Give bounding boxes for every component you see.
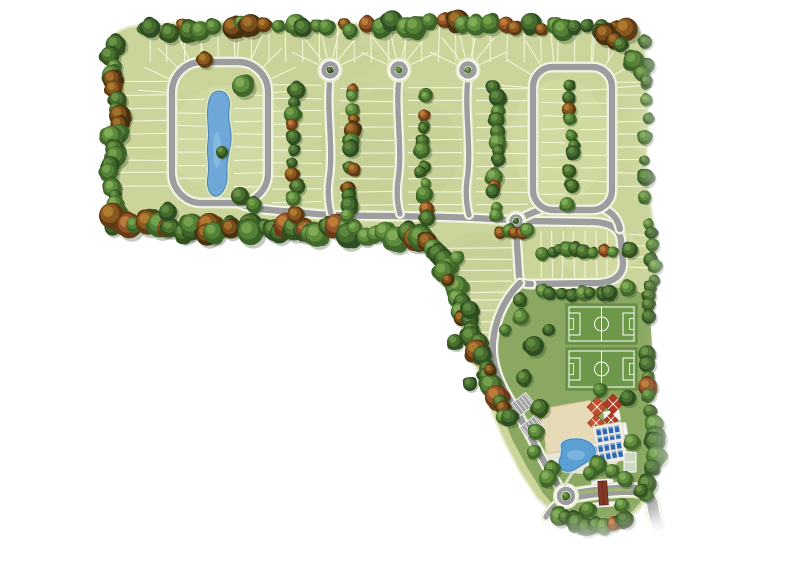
tree-canopy-light [582, 504, 589, 511]
tree-canopy-light [297, 21, 305, 29]
tree-canopy-light [618, 21, 628, 31]
tree-canopy-light [640, 132, 646, 138]
road [397, 78, 400, 214]
tree-canopy-light [648, 240, 654, 246]
tree-canopy-light [193, 24, 201, 32]
tree-canopy-light [328, 217, 338, 227]
tree-canopy-light [537, 25, 542, 30]
tree-canopy-light [104, 128, 113, 137]
tree-canopy-light [648, 434, 656, 442]
tree-canopy-light [108, 37, 117, 46]
tree-canopy-light [564, 93, 570, 99]
tree-canopy-light [645, 254, 651, 260]
tree-canopy-light [456, 295, 463, 302]
tree-canopy-light [645, 406, 651, 412]
tree-canopy-light [469, 18, 478, 27]
tree-canopy-light [609, 519, 615, 525]
tree-canopy-light [562, 243, 569, 250]
tree-canopy-light [486, 366, 491, 371]
site-plan-canvas [0, 0, 800, 566]
tree-canopy-light [226, 19, 235, 28]
tree-canopy-light [418, 188, 425, 195]
tree-canopy-light [162, 205, 170, 213]
tree-canopy-light [312, 21, 317, 26]
tree-canopy-light [530, 426, 537, 433]
tree-canopy-light [546, 463, 553, 470]
tree-canopy-light [288, 120, 293, 125]
lot-line [234, 173, 265, 174]
tree-canopy-light [288, 132, 294, 138]
tree-canopy-light [287, 169, 293, 175]
tree-canopy-light [644, 300, 650, 306]
tree-canopy-light [598, 26, 607, 35]
tree-canopy-light [636, 486, 642, 492]
tree-canopy-light [290, 146, 295, 151]
tree-canopy-light [585, 288, 590, 293]
tree-canopy-light [291, 84, 298, 91]
tree-canopy-light [208, 21, 215, 28]
tree-canopy-light [626, 436, 633, 443]
water-layer [207, 91, 231, 196]
masterplan-rendering [0, 0, 800, 566]
tree-canopy-light [103, 49, 111, 57]
tree-canopy-light [463, 329, 472, 338]
tree-canopy-light [183, 216, 193, 226]
tree-canopy-light [488, 171, 495, 178]
lot-line [234, 147, 265, 148]
tree-canopy-light [292, 181, 298, 187]
tree-canopy-light [106, 181, 114, 189]
tree-canopy-light [466, 68, 469, 71]
tree-canopy-light [492, 126, 498, 132]
tree-canopy-light [617, 500, 623, 506]
tree-canopy-light [569, 22, 575, 28]
tree-canopy-light [570, 244, 576, 250]
tree-canopy-light [582, 21, 588, 27]
tree-canopy-light [585, 468, 591, 474]
tree-canopy-light [568, 147, 574, 153]
lot-line [580, 129, 607, 130]
pool-highlight [567, 450, 585, 460]
lot-line [234, 121, 265, 122]
tree-canopy-light [348, 91, 353, 96]
tree-canopy-light [128, 219, 135, 226]
lot-line [580, 155, 607, 156]
tree-canopy-light [242, 17, 252, 27]
tree-canopy-light [555, 245, 559, 249]
tree-canopy-light [565, 81, 570, 86]
tree-canopy-light [112, 107, 121, 116]
tree-canopy-light [420, 111, 425, 116]
tree-canopy-light [465, 379, 471, 385]
tree-canopy-light [642, 76, 647, 81]
tree-canopy-light [199, 54, 206, 61]
tree-canopy-light [549, 248, 554, 253]
tree-canopy-light [537, 249, 543, 255]
tree [638, 190, 653, 205]
tree-canopy-light [350, 115, 354, 119]
tree-canopy-light [397, 68, 400, 71]
tree-canopy-light [529, 447, 535, 453]
tree-canopy-light [647, 228, 652, 233]
lot-line [408, 166, 462, 167]
tree-canopy-light [615, 39, 621, 45]
tree-canopy-light [641, 379, 649, 387]
tree-canopy-light [640, 171, 647, 178]
road [466, 78, 469, 215]
tree-canopy-light [321, 21, 328, 28]
tree-canopy-light [645, 220, 649, 224]
tree-canopy-light [343, 199, 351, 207]
tree-canopy-light [483, 377, 493, 387]
tree-canopy-light [558, 289, 563, 294]
tree-canopy-light [644, 290, 650, 296]
tree-canopy-light [422, 92, 427, 97]
lot-line [541, 167, 565, 168]
tree-canopy-light [407, 19, 417, 29]
tree-canopy-light [493, 203, 498, 208]
tree-canopy-light [567, 131, 572, 136]
tree-canopy-light [498, 402, 504, 408]
tree-canopy-light [344, 190, 350, 196]
tree-canopy-light [644, 114, 649, 119]
tree-canopy-light [418, 136, 424, 142]
tree-canopy-light [452, 253, 458, 259]
tree-canopy-light [493, 106, 499, 112]
tree-canopy-light [218, 148, 223, 153]
tree-canopy-light [570, 515, 578, 523]
tree-canopy-light [527, 339, 535, 347]
tree-canopy-light [649, 448, 658, 457]
tree-canopy-light [564, 166, 570, 172]
tree-canopy-light [515, 295, 521, 301]
tree-canopy-light [510, 23, 516, 29]
tree-canopy-light [491, 91, 498, 98]
lot-line [476, 88, 528, 89]
tree-canopy-light [340, 20, 345, 25]
tree-canopy-light [642, 95, 647, 100]
tree-canopy-light [416, 167, 421, 172]
lot-line [178, 113, 205, 114]
tree-canopy-light [503, 411, 510, 418]
tree-canopy-light [144, 21, 152, 29]
tree-canopy-light [648, 417, 656, 425]
tree-canopy-light [500, 19, 507, 26]
tree-canopy-light [387, 230, 398, 241]
tree-canopy-light [422, 179, 426, 183]
tree-canopy-light [641, 347, 648, 354]
tree-canopy-light [650, 276, 655, 281]
tree-canopy-light [234, 189, 242, 197]
lot-line [234, 160, 265, 161]
tree-canopy-light [328, 68, 331, 71]
tree-canopy-light [646, 462, 653, 469]
tree-canopy-light [501, 326, 506, 331]
tree-canopy-light [107, 83, 114, 90]
tree-canopy-light [619, 513, 626, 520]
tree-canopy-light [378, 224, 387, 233]
tree-canopy-light [580, 520, 588, 528]
tree-canopy-light [622, 392, 629, 399]
tree-canopy-light [622, 282, 629, 289]
tree-canopy-light [349, 164, 355, 170]
tree-canopy-light [626, 53, 635, 62]
tree-canopy-light [491, 136, 498, 143]
tree-canopy-light [604, 287, 611, 294]
tree-canopy-light [567, 290, 573, 296]
tree-canopy-light [510, 228, 515, 233]
tree-canopy-light [421, 203, 427, 209]
lot-line [448, 248, 512, 249]
tree-canopy-light [522, 225, 528, 231]
tree-canopy-light [578, 288, 584, 294]
tree-canopy-light [259, 19, 265, 25]
road [328, 78, 331, 214]
tree-canopy-light [494, 155, 500, 161]
tree-canopy-light [523, 16, 532, 25]
lot-line [178, 99, 205, 100]
tree-canopy-light [424, 15, 431, 22]
tree-canopy-light [488, 186, 494, 192]
tree-canopy-light [436, 263, 445, 272]
tree-canopy-light [545, 326, 550, 331]
tree-canopy-light [563, 493, 566, 496]
tree-canopy-light [475, 348, 483, 356]
lot-line [541, 102, 565, 103]
tree-canopy-light [514, 219, 517, 222]
tree-canopy-light [288, 193, 294, 199]
tree-canopy-light [491, 210, 497, 216]
tree-canopy-light [545, 289, 550, 294]
tree-canopy-light [600, 246, 605, 251]
tree-canopy-light [347, 105, 353, 111]
tree-canopy-light [346, 124, 353, 131]
lot-line [234, 134, 265, 135]
tree-canopy-light [248, 199, 255, 206]
tree-canopy-light [224, 221, 232, 229]
tree-canopy-light [650, 261, 656, 267]
tree-canopy-light [422, 212, 429, 219]
tree-canopy-light [103, 206, 114, 217]
tree-canopy-light [641, 157, 645, 161]
tree-canopy-light [565, 114, 570, 119]
tree-canopy-light [640, 37, 646, 43]
tree-canopy-light [290, 98, 295, 103]
tree-canopy-light [619, 473, 626, 480]
tree-canopy-light [206, 225, 215, 234]
tree-canopy-light [308, 226, 318, 236]
tree-canopy-light [640, 192, 646, 198]
tree-canopy-light [235, 78, 244, 87]
tree-canopy-light [457, 18, 464, 25]
tree-canopy-light [538, 286, 544, 292]
tree-canopy-light [567, 181, 573, 187]
tree-canopy-light [494, 146, 499, 151]
tree-canopy-light [290, 209, 297, 216]
tree-canopy-light [416, 144, 423, 151]
tree-canopy-light [491, 114, 498, 121]
tree-canopy-light [483, 16, 491, 24]
tree-canopy-light [163, 26, 171, 34]
tree-canopy-light [578, 246, 584, 252]
tree-canopy-light [624, 244, 631, 251]
tree-canopy-light [589, 249, 594, 254]
tree-canopy-light [640, 477, 648, 485]
tree-canopy-light [515, 311, 522, 318]
tree-canopy-light [609, 248, 614, 253]
tree-canopy-light [560, 512, 566, 518]
tree-canopy-light [102, 165, 110, 173]
tree-canopy-light [534, 401, 542, 409]
tree-canopy-light [274, 22, 279, 27]
tree-canopy-light [644, 311, 650, 317]
tree-canopy-light [106, 72, 114, 80]
tree-canopy-light [598, 520, 605, 527]
tree-canopy-light [518, 372, 525, 379]
tree-canopy-light [592, 458, 600, 466]
tree-canopy-light [488, 82, 494, 88]
tree-canopy-light [108, 148, 117, 157]
tree-canopy-light [361, 18, 368, 25]
tree-canopy-light [542, 471, 550, 479]
tree-canopy-light [359, 230, 367, 238]
tree-canopy-light [241, 223, 252, 234]
tree [463, 377, 479, 393]
tree-canopy-light [464, 303, 472, 311]
tree-canopy-light [595, 385, 601, 391]
tree-canopy-light [641, 358, 648, 365]
tree-canopy-light [555, 22, 564, 31]
tree-canopy-light [111, 93, 119, 101]
tree-canopy-light [449, 336, 456, 343]
tree-canopy-light [342, 210, 348, 216]
tree-canopy-light [562, 199, 568, 205]
tree-canopy-light [496, 228, 501, 233]
tree-canopy-light [345, 25, 351, 31]
tree-canopy-light [385, 13, 394, 22]
tree-canopy-light [643, 390, 649, 396]
lot-line [541, 155, 565, 156]
lot-line [630, 267, 648, 268]
tree-canopy-light [288, 159, 293, 164]
tree-canopy-light [607, 466, 613, 472]
tree-canopy-light [439, 15, 445, 21]
tree-canopy-light [344, 142, 351, 149]
tree-canopy-light [636, 68, 642, 74]
tree-canopy-light [444, 276, 449, 281]
soccer-field [566, 304, 637, 344]
tree-canopy-light [564, 104, 570, 110]
tree-canopy-light [286, 108, 293, 115]
tree-canopy-light [420, 124, 425, 129]
tree-canopy-light [646, 282, 651, 287]
tree-canopy-light [570, 141, 575, 146]
